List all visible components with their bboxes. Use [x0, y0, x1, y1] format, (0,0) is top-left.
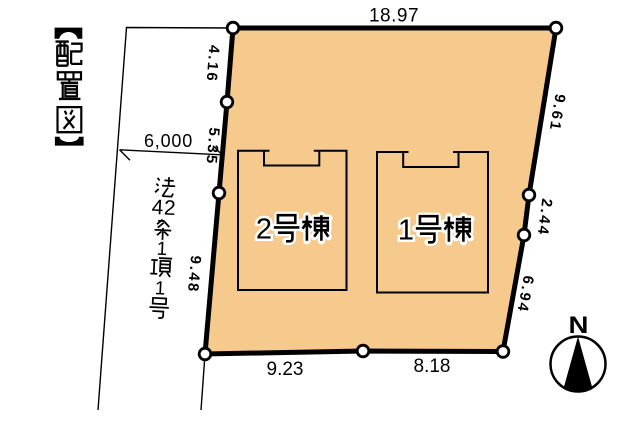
- svg-text:42: 42: [151, 196, 177, 220]
- svg-text:8.18: 8.18: [414, 356, 451, 377]
- svg-text:N: N: [569, 313, 589, 339]
- svg-text:2: 2: [256, 213, 272, 245]
- svg-text:1: 1: [398, 214, 414, 246]
- svg-text:1: 1: [156, 239, 168, 260]
- svg-text:18.97: 18.97: [369, 6, 419, 27]
- svg-text:4.16: 4.16: [203, 44, 223, 83]
- svg-text:2.44: 2.44: [534, 197, 556, 237]
- svg-text:5.35: 5.35: [202, 127, 222, 166]
- svg-text:9.23: 9.23: [267, 359, 304, 380]
- svg-text:6,000: 6,000: [144, 131, 193, 151]
- svg-text:9.48: 9.48: [184, 255, 204, 294]
- svg-text:1: 1: [154, 278, 166, 299]
- svg-text:9.61: 9.61: [546, 93, 569, 133]
